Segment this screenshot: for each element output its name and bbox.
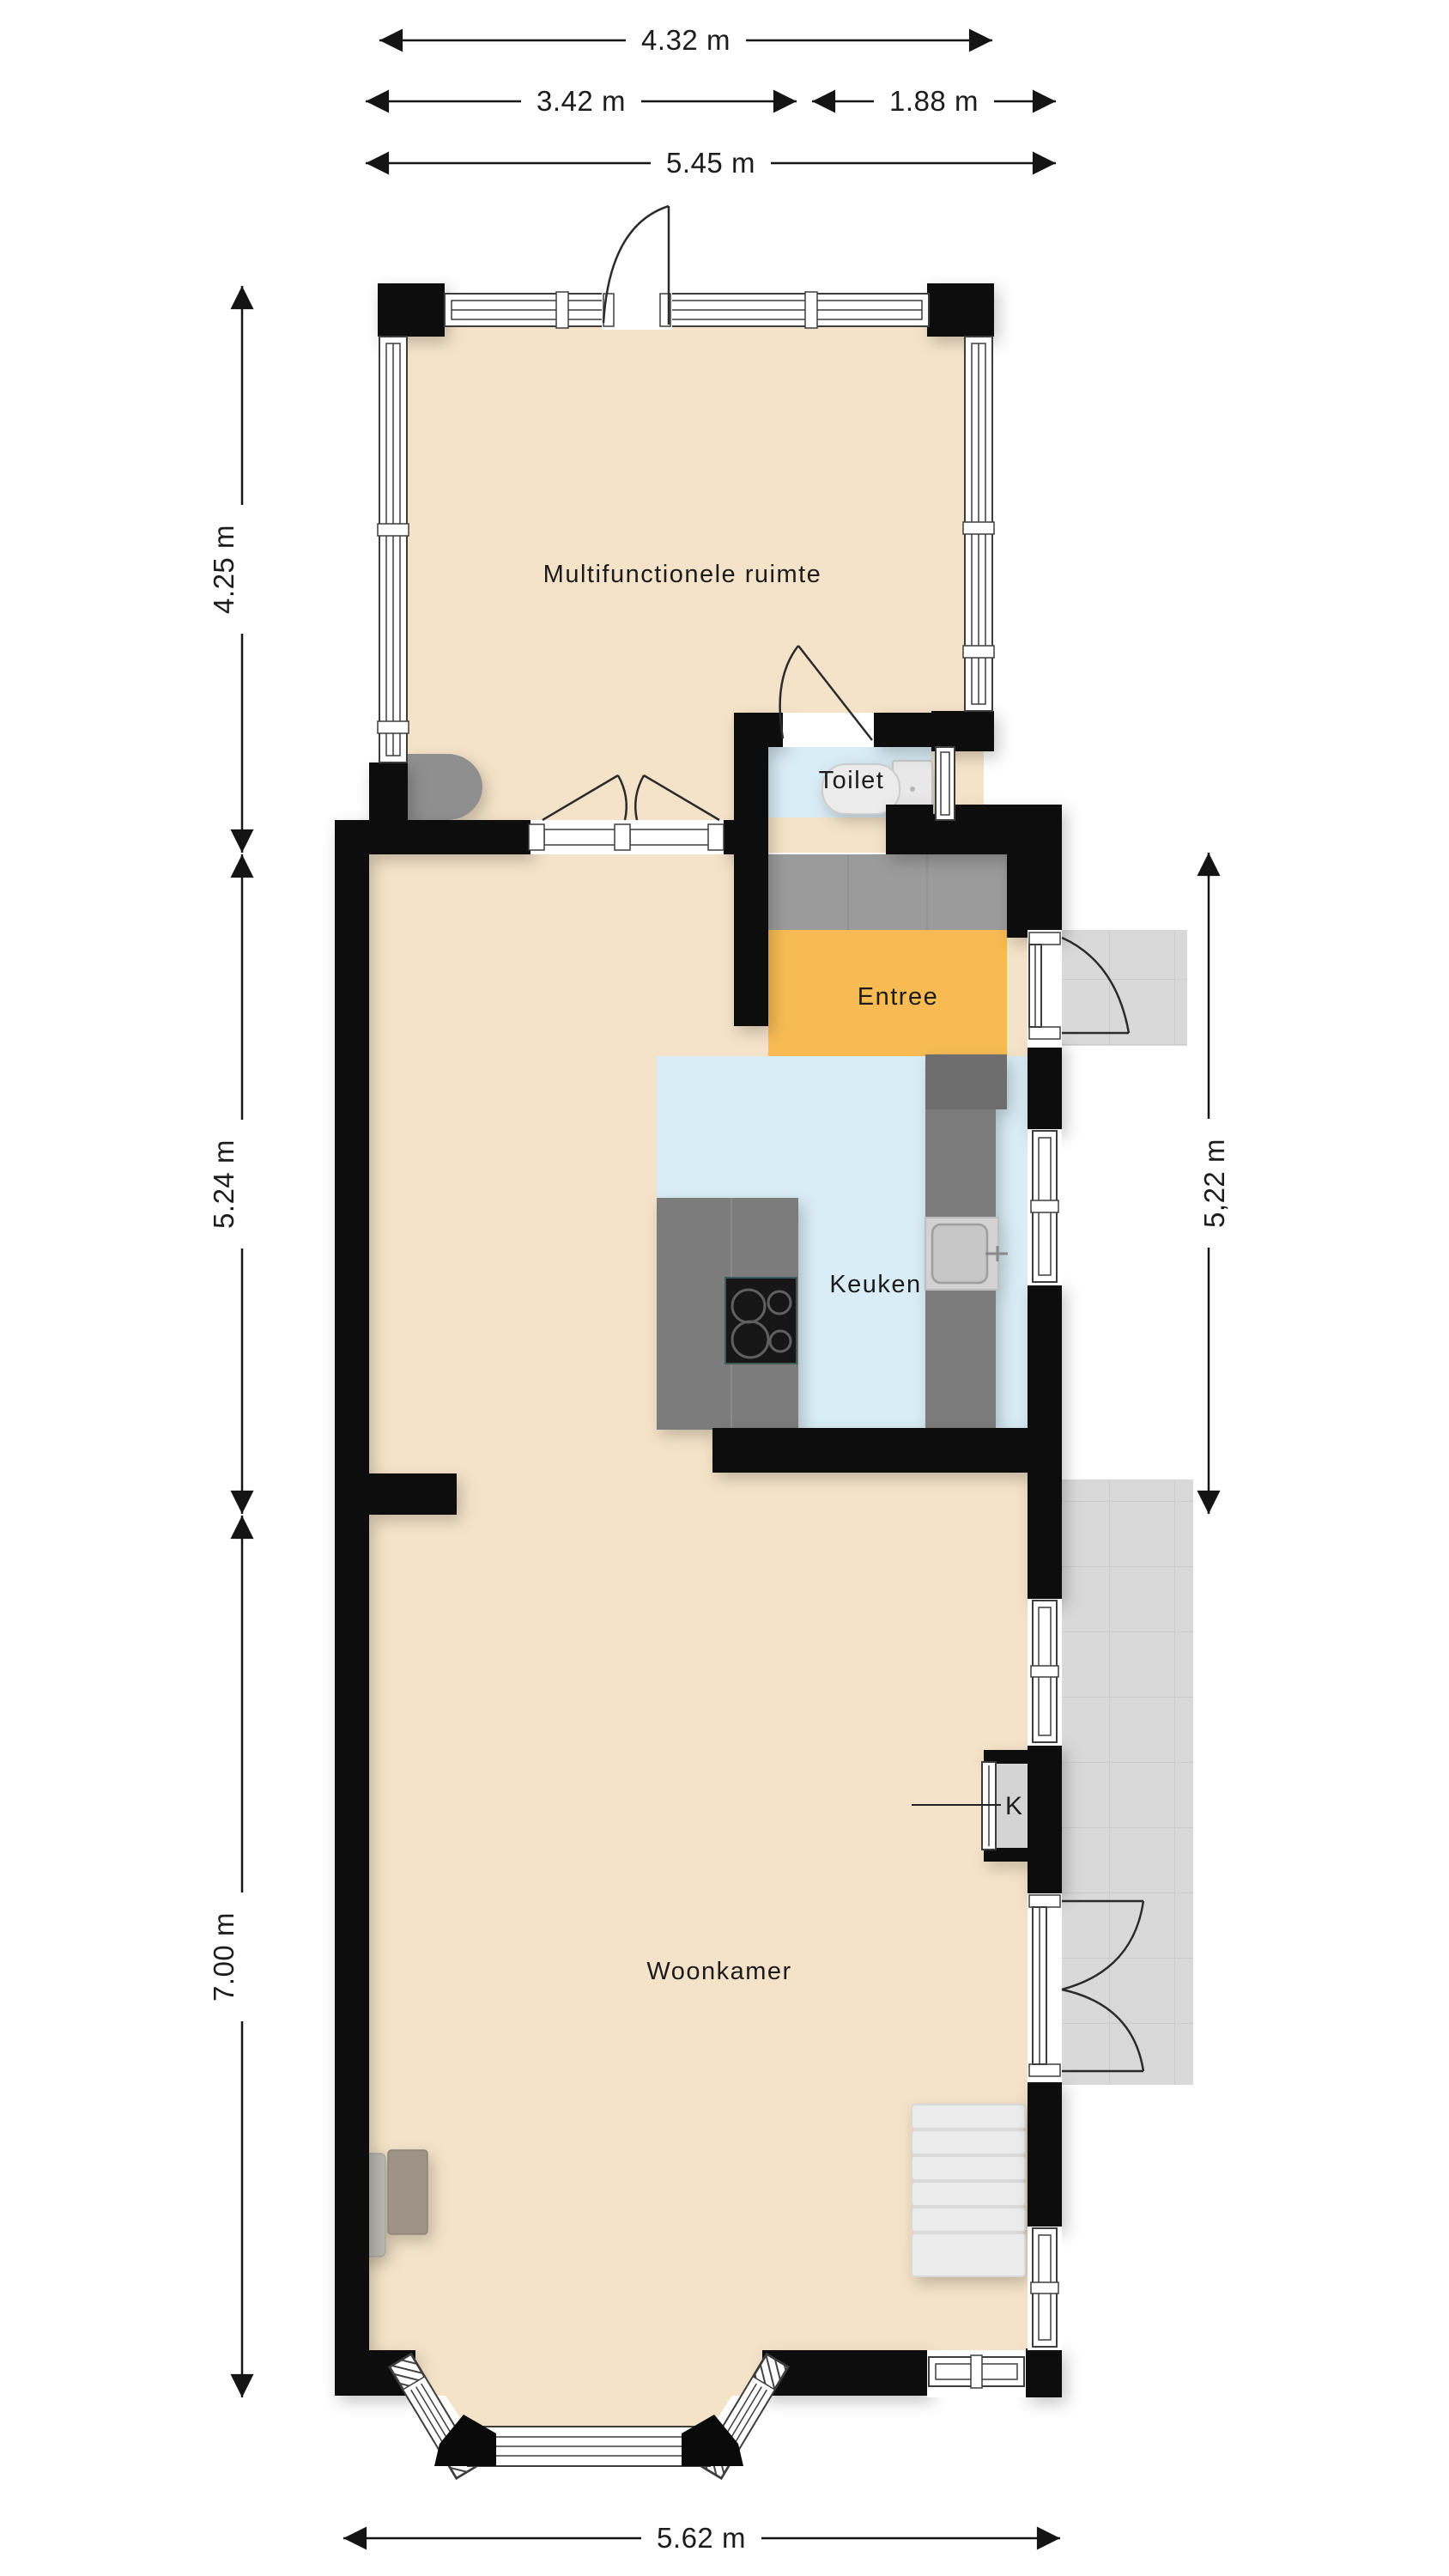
dim-middle-height-right: 5,22 m — [1198, 1139, 1230, 1228]
woonkamer-window-lower — [1028, 2227, 1062, 2350]
label-woonkamer: Woonkamer — [646, 1958, 791, 1985]
annex-top-window — [445, 292, 929, 328]
annex-left-window — [378, 337, 409, 762]
dim-top-width-total: 5.45 m — [666, 147, 755, 179]
stairs — [912, 2105, 1025, 2276]
label-toilet: Toilet — [819, 767, 885, 794]
dim-top-width-left: 3.42 m — [537, 85, 626, 117]
dim-annex-height: 4.25 m — [208, 525, 239, 614]
label-entree: Entree — [858, 983, 938, 1011]
annex-door — [602, 206, 672, 330]
label-keuken: Keuken — [829, 1271, 921, 1298]
dim-annex-width: 4.32 m — [641, 24, 731, 56]
floor-plan: Multifunctionele ruimte Toilet Entree Ke… — [0, 0, 1449, 2576]
label-multifunctionele-ruimte: Multifunctionele ruimte — [543, 561, 822, 588]
sink-icon — [925, 1218, 1008, 1290]
bottom-window — [927, 2350, 1026, 2397]
keuken-window — [1028, 1129, 1062, 1285]
heater-cabinet — [406, 754, 482, 820]
annex-right-window — [963, 337, 994, 711]
cooktop-icon — [725, 1278, 797, 1364]
woonkamer-window-upper — [1028, 1599, 1062, 1746]
counter-top-block — [925, 1054, 1007, 1109]
dim-bottom-width-total: 5.62 m — [657, 2522, 746, 2554]
label-kast: K — [1005, 1792, 1022, 1820]
toilet-window — [936, 747, 955, 820]
floor-plan-page: Multifunctionele ruimte Toilet Entree Ke… — [0, 0, 1449, 2576]
dim-living-height: 7.00 m — [208, 1912, 239, 2002]
dim-middle-height-left: 5.24 m — [208, 1139, 239, 1229]
entree-mat — [768, 854, 1007, 930]
terrace — [1062, 1479, 1193, 2085]
dim-top-width-right: 1.88 m — [889, 85, 979, 117]
sofa-right — [388, 2150, 427, 2234]
